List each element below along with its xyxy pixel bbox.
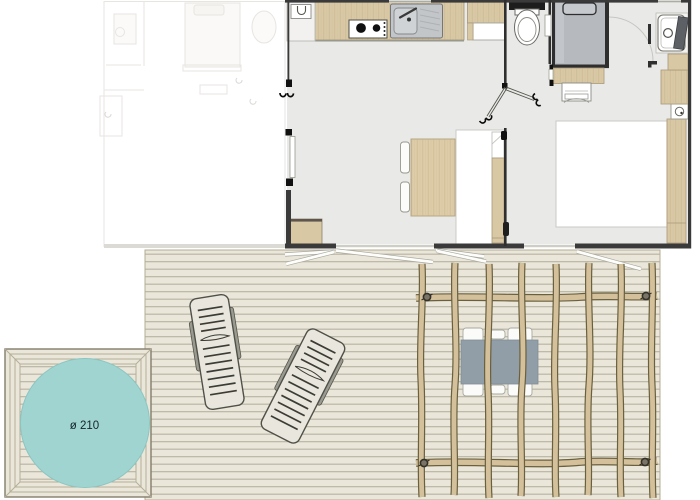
svg-text:ø 210: ø 210	[70, 420, 99, 432]
